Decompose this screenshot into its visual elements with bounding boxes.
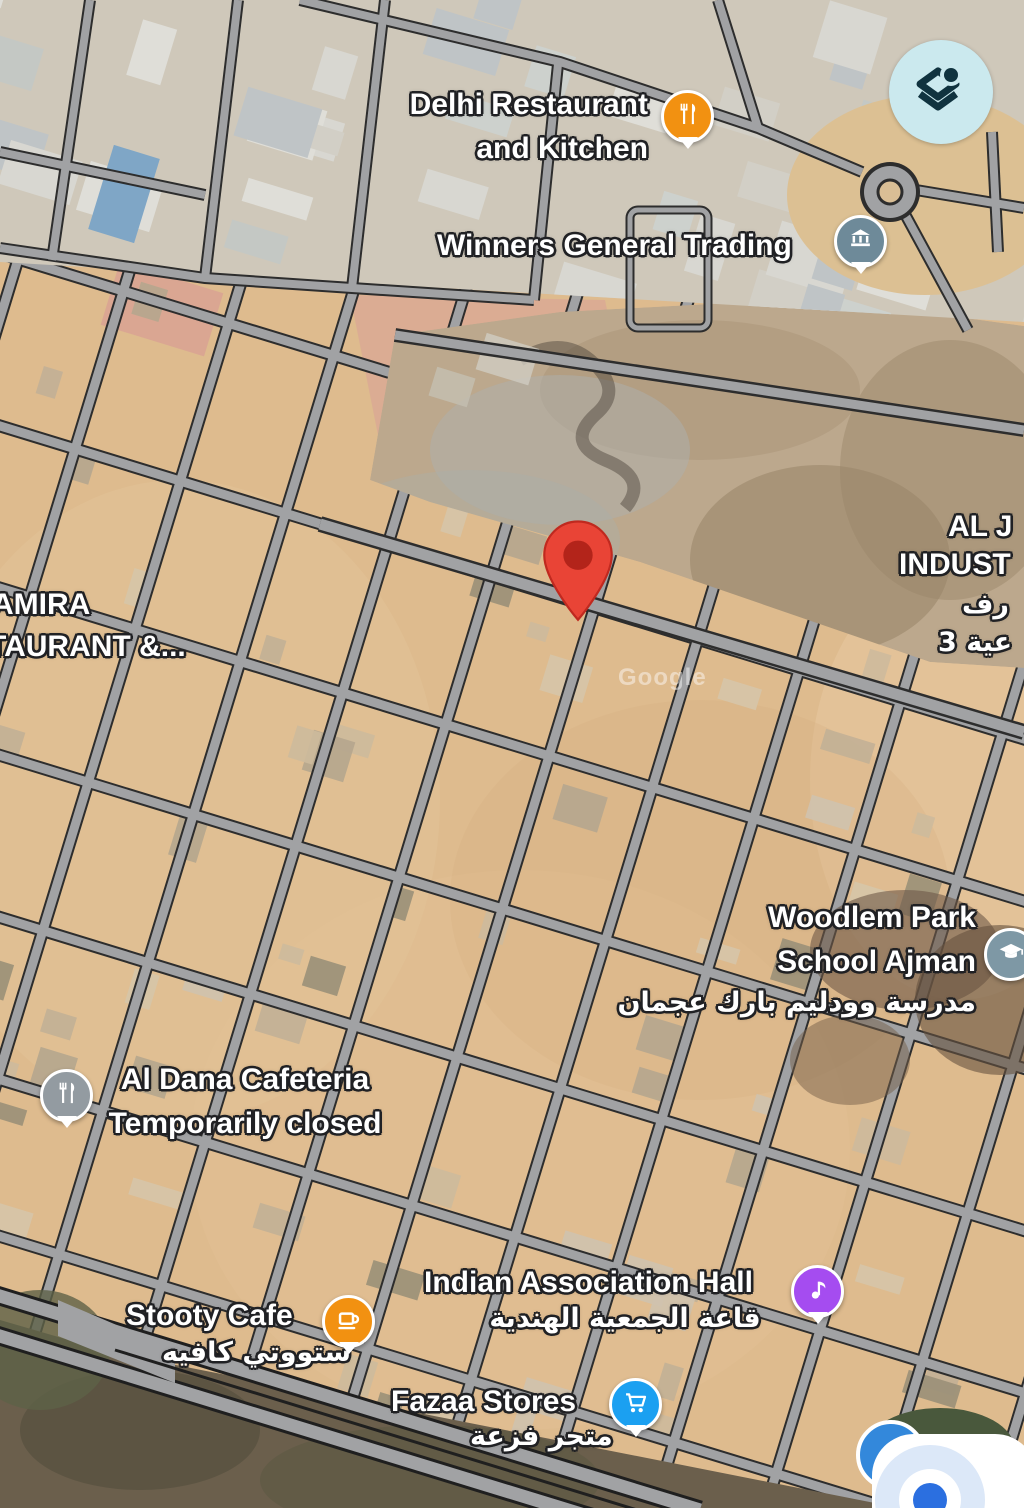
- restaurant-icon: [54, 1080, 80, 1111]
- bank-building-icon: [847, 226, 874, 258]
- status-temporarily-closed: Temporarily closed: [100, 1102, 390, 1146]
- google-maps-satellite-view: Delhi Restaurantand Kitchen Winners Gene…: [0, 0, 1024, 1508]
- poi-label-woodlem-school[interactable]: Woodlem ParkSchool Ajman مدرسة وودليم با…: [700, 896, 976, 1022]
- layers-icon: [911, 60, 971, 125]
- poi-label-al-dana-cafeteria[interactable]: Al Dana Cafeteria Temporarily closed: [100, 1058, 390, 1146]
- google-watermark: Google: [618, 664, 707, 692]
- restaurant-icon: [675, 101, 701, 132]
- poi-label-indian-association-hall-ar: قاعة الجمعية الهندية: [460, 1300, 790, 1338]
- al-dana-cafeteria-pin[interactable]: [40, 1069, 93, 1122]
- poi-label-fazaa-stores-ar: متجر فزعة: [470, 1418, 613, 1456]
- winners-general-trading-pin[interactable]: [834, 215, 887, 268]
- school-icon: [997, 938, 1024, 971]
- poi-label-stooty-cafe-ar: ستووتي كافيه: [162, 1334, 351, 1372]
- cart-icon: [622, 1389, 649, 1421]
- poi-label-amira-line1[interactable]: AMIRA: [0, 583, 90, 627]
- music-icon: [805, 1276, 831, 1307]
- stooty-cafe-pin[interactable]: [322, 1295, 375, 1348]
- poi-label-winners-general-trading[interactable]: Winners General Trading: [437, 224, 792, 268]
- dropped-pin[interactable]: [534, 515, 622, 632]
- poi-label-indian-association-hall[interactable]: Indian Association Hall: [424, 1261, 753, 1305]
- area-label-al-jurf-ar2: عية 3: [938, 624, 1012, 662]
- area-label-al-jurf-ar1: رف: [962, 586, 1009, 624]
- poi-label-amira-line2[interactable]: TAURANT &...: [0, 625, 186, 669]
- delhi-restaurant-pin[interactable]: [661, 90, 714, 143]
- poi-label-stooty-cafe[interactable]: Stooty Cafe: [126, 1294, 293, 1338]
- poi-label-delhi-restaurant[interactable]: Delhi Restaurantand Kitchen: [330, 83, 648, 171]
- area-label-al-jurf-line2[interactable]: INDUST: [899, 543, 1011, 587]
- location-control[interactable]: [872, 1434, 1024, 1508]
- layers-button[interactable]: [889, 40, 993, 144]
- fazaa-stores-pin[interactable]: [609, 1378, 662, 1431]
- indian-association-hall-pin[interactable]: [791, 1265, 844, 1318]
- cafe-icon: [335, 1306, 362, 1338]
